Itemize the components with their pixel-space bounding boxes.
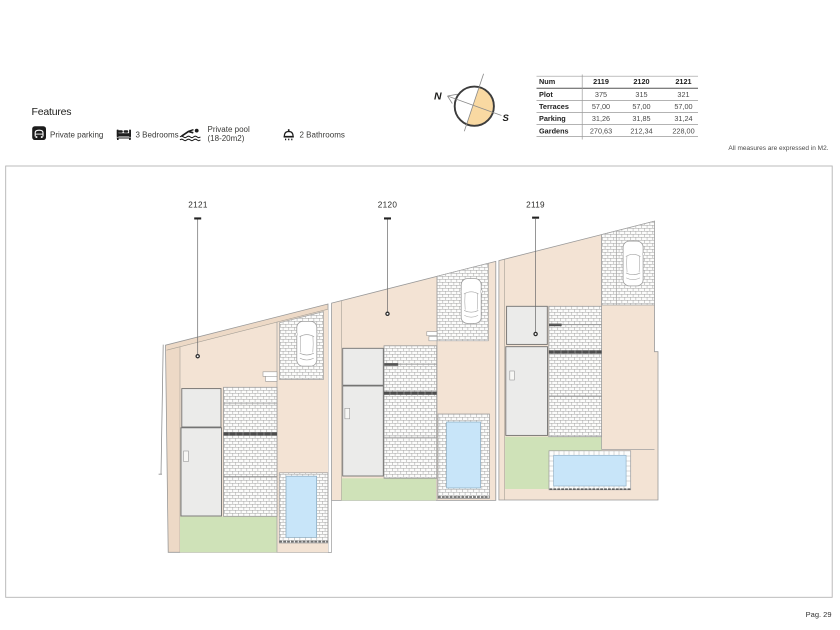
svg-text:Parking: Parking [539,114,566,123]
svg-text:N: N [434,91,442,103]
svg-text:Private pool: Private pool [208,125,250,134]
svg-text:2121: 2121 [188,201,208,210]
svg-text:Plot: Plot [539,90,553,99]
svg-text:212,34: 212,34 [630,126,652,135]
svg-text:All measures are expressed in: All measures are expressed in M2. [728,145,828,152]
svg-text:2119: 2119 [526,201,545,210]
svg-text:270,63: 270,63 [590,126,612,135]
svg-text:Pag. 29: Pag. 29 [806,610,832,619]
svg-text:375: 375 [595,90,607,99]
svg-text:315: 315 [635,90,647,99]
svg-text:2120: 2120 [378,201,398,210]
svg-text:31,24: 31,24 [674,114,692,123]
svg-text:57,00: 57,00 [674,102,692,111]
svg-text:2120: 2120 [633,77,649,86]
svg-text:3 Bedrooms: 3 Bedrooms [136,130,179,139]
svg-text:(18-20m2): (18-20m2) [208,134,245,143]
svg-text:S: S [503,113,510,124]
svg-text:31,26: 31,26 [592,114,610,123]
svg-text:Terraces: Terraces [539,102,569,111]
svg-text:Gardens: Gardens [539,126,569,135]
svg-text:57,00: 57,00 [632,102,650,111]
svg-text:Features: Features [32,106,72,118]
svg-text:Private parking: Private parking [50,130,103,139]
svg-text:57,00: 57,00 [592,102,610,111]
svg-text:321: 321 [677,90,689,99]
svg-text:2 Bathrooms: 2 Bathrooms [300,130,345,139]
svg-text:2121: 2121 [675,77,691,86]
svg-text:31,85: 31,85 [632,114,650,123]
svg-text:Num: Num [539,77,556,86]
svg-text:228,00: 228,00 [672,126,694,135]
svg-text:2119: 2119 [593,77,609,86]
